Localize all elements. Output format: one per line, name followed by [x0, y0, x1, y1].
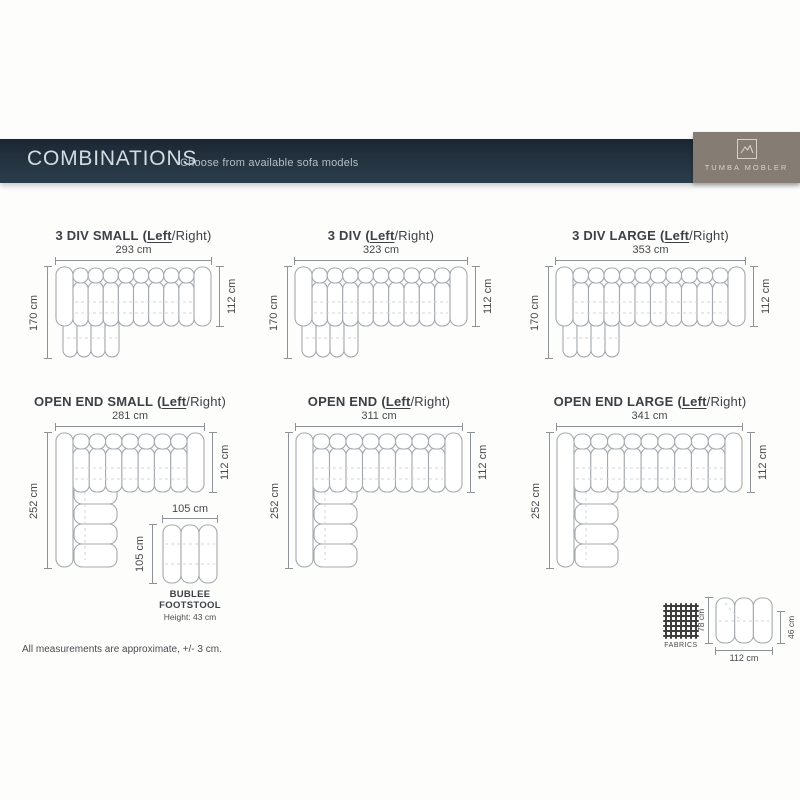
footstool-top-view [162, 524, 218, 584]
diagram-title-3-div-small: 3 DIV SMALL(Left/Right) [33, 228, 234, 243]
footstool-name: FOOTSTOOL [140, 600, 240, 611]
depth-dimension-label: 112 cm [481, 266, 495, 327]
left-option: Left [682, 394, 707, 409]
width-dimension-label: 281 cm [55, 410, 205, 422]
depth-dimension-line [219, 266, 220, 327]
height-dimension-line [288, 432, 289, 569]
footstool-height-note: Height: 43 cm [140, 612, 240, 622]
diagram-title-open-end-small: OPEN END SMALL(Left/Right) [30, 394, 230, 409]
brand-name: TUMBA MOBLER [705, 163, 789, 172]
module-seat-depth-label: 46 cm [784, 611, 798, 644]
width-dimension-line [295, 426, 463, 427]
width-dimension-line [556, 426, 743, 427]
depth-dimension-line [753, 266, 754, 327]
footstool-depth-label: 105 cm [133, 524, 147, 584]
depth-dimension-label: 112 cm [225, 266, 239, 327]
diagram-title-3-div: 3 DIV(Left/Right) [281, 228, 481, 243]
left-option: Left [386, 394, 411, 409]
sofa-top-view-3-div-large [555, 266, 746, 359]
depth-dimension-line [475, 266, 476, 327]
width-dimension-label: 323 cm [294, 244, 468, 256]
height-dimension-label: 170 cm [267, 266, 281, 359]
footstool-depth-line [152, 524, 153, 584]
left-option: Left [162, 394, 187, 409]
height-dimension-line [47, 432, 48, 569]
left-option: Left [370, 228, 395, 243]
height-dimension-label: 170 cm [27, 266, 41, 359]
diagram-title-3-div-large: 3 DIV LARGE(Left/Right) [550, 228, 751, 243]
width-dimension-label: 353 cm [555, 244, 746, 256]
depth-dimension-label: 112 cm [476, 432, 490, 493]
measurement-disclaimer: All measurements are approximate, +/- 3 … [22, 644, 222, 655]
footstool-caption: BUBLEE FOOTSTOOL [140, 589, 240, 611]
catalog-page: COMBINATIONS Choose from available sofa … [0, 0, 800, 800]
module-top-view [715, 597, 773, 644]
depth-dimension-line [212, 432, 213, 493]
diagram-name: 3 DIV SMALL [56, 228, 139, 243]
module-depth-line [708, 597, 709, 644]
right-option: Right [176, 228, 207, 243]
brand-logo: TUMBA MOBLER [693, 132, 800, 183]
width-dimension-line [55, 426, 205, 427]
brand-icon [736, 138, 758, 160]
right-option: Right [693, 228, 724, 243]
width-dimension-line [55, 260, 212, 261]
width-dimension-line [294, 260, 468, 261]
diagram-name: OPEN END LARGE [554, 394, 674, 409]
module-seat-depth-line [780, 611, 781, 644]
width-dimension-label: 293 cm [55, 244, 212, 256]
sofa-top-view-3-div-small [55, 266, 212, 359]
depth-dimension-label: 112 cm [218, 432, 232, 493]
sofa-top-view-3-div [294, 266, 468, 359]
height-dimension-line [47, 266, 48, 359]
footstool-name: BUBLEE [140, 589, 240, 600]
height-dimension-line [548, 266, 549, 359]
diagram-name: 3 DIV [328, 228, 362, 243]
module-width-label: 112 cm [715, 653, 773, 663]
page-title: COMBINATIONS [27, 147, 197, 171]
right-option: Right [710, 394, 741, 409]
footstool-width-line [162, 518, 218, 519]
left-option: Left [665, 228, 690, 243]
diagram-title-open-end-large: OPEN END LARGE(Left/Right) [550, 394, 750, 409]
module-depth-label: 78 cm [694, 597, 708, 644]
right-option: Right [414, 394, 445, 409]
footstool-width-label: 105 cm [162, 503, 218, 515]
height-dimension-line [549, 432, 550, 569]
diagram-title-open-end: OPEN END(Left/Right) [279, 394, 479, 409]
sofa-top-view-open-end-large [556, 432, 743, 569]
sofa-top-view-open-end [295, 432, 463, 569]
depth-dimension-label: 112 cm [756, 432, 770, 493]
width-dimension-label: 311 cm [295, 410, 463, 422]
left-option: Left [147, 228, 172, 243]
width-dimension-label: 341 cm [556, 410, 743, 422]
width-dimension-line [555, 260, 746, 261]
height-dimension-line [287, 266, 288, 359]
depth-dimension-line [470, 432, 471, 493]
height-dimension-label: 252 cm [27, 432, 41, 569]
depth-dimension-line [750, 432, 751, 493]
right-option: Right [398, 228, 429, 243]
diagram-name: OPEN END SMALL [34, 394, 153, 409]
diagram-name: 3 DIV LARGE [572, 228, 656, 243]
depth-dimension-label: 112 cm [759, 266, 773, 327]
height-dimension-label: 252 cm [529, 432, 543, 569]
banner-subtitle: Choose from available sofa models [180, 157, 358, 169]
height-dimension-label: 252 cm [268, 432, 282, 569]
module-width-line [715, 650, 773, 651]
right-option: Right [190, 394, 221, 409]
diagram-name: OPEN END [308, 394, 378, 409]
height-dimension-label: 170 cm [528, 266, 542, 359]
